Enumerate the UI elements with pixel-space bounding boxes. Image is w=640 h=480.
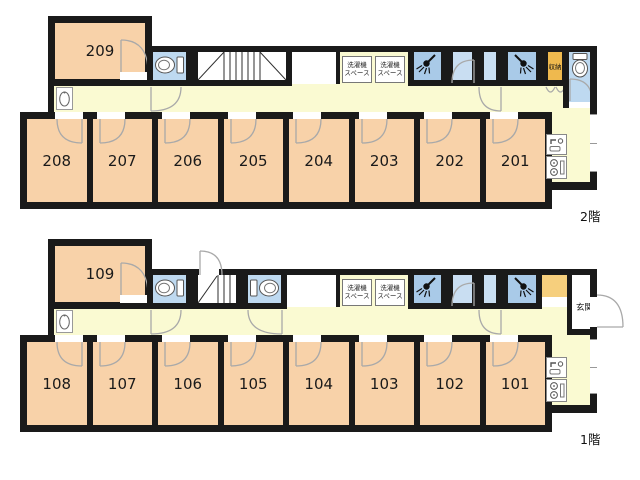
door-arc bbox=[293, 335, 323, 369]
rooms-row-2f: 208 207 206 205 bbox=[20, 112, 552, 209]
door-arc bbox=[359, 335, 389, 369]
room-number: 209 bbox=[86, 42, 115, 60]
toilet-room-left-2f bbox=[147, 46, 192, 86]
room-206: 206 bbox=[158, 119, 218, 202]
shower-icon bbox=[508, 52, 536, 78]
stairs-symbol bbox=[198, 275, 236, 303]
stove-icon bbox=[546, 379, 567, 402]
room-207: 207 bbox=[93, 119, 153, 202]
door-arc bbox=[359, 112, 389, 146]
rooms-row-1f: 108 107 106 105 bbox=[20, 335, 552, 432]
window-1f bbox=[590, 339, 597, 394]
door-arc bbox=[228, 112, 258, 146]
door-arc bbox=[162, 335, 192, 369]
kitchen-sink-icon bbox=[546, 134, 567, 155]
shower-stall-2-2f bbox=[502, 46, 542, 86]
door-arc bbox=[162, 112, 192, 146]
room-103: 103 bbox=[355, 342, 415, 425]
floor-plan: 209 bbox=[0, 0, 640, 480]
door-arc-dressing-1-2f bbox=[450, 59, 477, 85]
room-102: 102 bbox=[420, 342, 480, 425]
stair-landing-2f bbox=[292, 46, 336, 84]
shower-icon bbox=[414, 52, 441, 78]
door-arc-room109 bbox=[118, 259, 150, 303]
room-106: 106 bbox=[158, 342, 218, 425]
door-arc-toilet-left-2f bbox=[149, 86, 185, 113]
door-arc-dressing-2-1f bbox=[478, 309, 504, 336]
room-number: 109 bbox=[86, 265, 115, 283]
toilet-icon bbox=[153, 52, 186, 79]
stair-hall-1f bbox=[287, 269, 336, 307]
room-109: 109 bbox=[48, 239, 152, 309]
entrance-bottom-wall bbox=[567, 329, 592, 335]
toilet-icon bbox=[569, 52, 591, 80]
washbasin-icon bbox=[56, 87, 73, 110]
door-arc bbox=[424, 112, 454, 146]
door-arc bbox=[97, 112, 127, 146]
room-204: 204 bbox=[289, 119, 349, 202]
room-108: 108 bbox=[27, 342, 87, 425]
room-208: 208 bbox=[27, 119, 87, 202]
door-arc-room209 bbox=[118, 36, 150, 80]
floor-label-1f: 1階 bbox=[580, 429, 600, 448]
stove-icon bbox=[546, 156, 567, 179]
shower-icon bbox=[508, 275, 536, 301]
corridor-1f bbox=[50, 307, 595, 335]
washbasin-icon bbox=[56, 310, 73, 333]
door-arc-toilet-2-1f bbox=[246, 309, 284, 336]
entrance-cabinet-1f bbox=[542, 269, 568, 297]
door-arc bbox=[293, 112, 323, 146]
room-201: 201 bbox=[486, 119, 546, 202]
door-arc bbox=[228, 335, 258, 369]
floor-1: 109 bbox=[18, 239, 622, 449]
storage-label: 収納 bbox=[549, 61, 562, 71]
door-arc bbox=[424, 335, 454, 369]
door-arc bbox=[97, 335, 127, 369]
stairs-symbol bbox=[198, 52, 286, 80]
door-arc bbox=[490, 335, 520, 369]
door-arc-dressing-1-1f bbox=[450, 282, 477, 308]
room-205: 205 bbox=[224, 119, 284, 202]
floor-label-2f: 2階 bbox=[580, 206, 600, 225]
toilet-icon bbox=[248, 275, 281, 302]
toilet-room-2-1f bbox=[242, 269, 287, 309]
staircase-2f bbox=[192, 46, 292, 86]
toilet-icon bbox=[153, 275, 186, 302]
floor-2: 209 bbox=[18, 16, 622, 226]
room-105: 105 bbox=[224, 342, 284, 425]
shower-dressing-2-2f bbox=[478, 46, 502, 86]
corridor-2f bbox=[50, 84, 595, 112]
door-arc-stairs-1f bbox=[198, 249, 224, 275]
laundry-space-2: 洗濯機 スペース bbox=[375, 279, 405, 306]
shower-icon bbox=[414, 275, 441, 301]
room-104: 104 bbox=[289, 342, 349, 425]
door-arc-dressing-2-2f bbox=[478, 86, 504, 113]
shower-stall-1-2f bbox=[408, 46, 447, 86]
room-107: 107 bbox=[93, 342, 153, 425]
room-203: 203 bbox=[355, 119, 415, 202]
room-202: 202 bbox=[420, 119, 480, 202]
door-arc bbox=[55, 112, 85, 146]
room-209: 209 bbox=[48, 16, 152, 86]
shower-stall-2-1f bbox=[502, 269, 542, 309]
toilet-room-left-1f bbox=[147, 269, 192, 309]
shower-dressing-2-1f bbox=[478, 269, 502, 309]
door-arc bbox=[55, 335, 85, 369]
laundry-space-1: 洗濯機 スペース bbox=[342, 56, 372, 83]
room-101: 101 bbox=[486, 342, 546, 425]
kitchen-sink-icon bbox=[546, 357, 567, 378]
door-arc-toilet-left-1f bbox=[149, 309, 185, 336]
door-arc bbox=[490, 112, 520, 146]
window-2f bbox=[590, 114, 597, 172]
laundry-space-2: 洗濯機 スペース bbox=[375, 56, 405, 83]
entrance-door-arc bbox=[595, 293, 625, 329]
shower-stall-1-1f bbox=[408, 269, 447, 309]
laundry-space-1: 洗濯機 スペース bbox=[342, 279, 372, 306]
